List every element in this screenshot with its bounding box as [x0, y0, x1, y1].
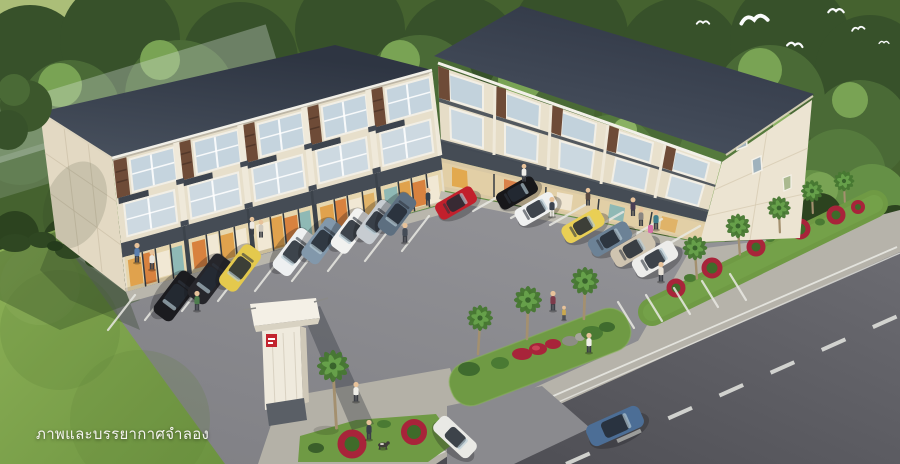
flower-ring — [341, 433, 363, 455]
gable-window — [752, 156, 762, 174]
flower-ring — [704, 260, 720, 276]
rendering-stage: ภาพและบรรยากาศจำลอง — [0, 0, 900, 464]
flower-ring — [749, 240, 763, 254]
pink-luggage — [648, 225, 653, 233]
watermark-disclaimer: ภาพและบรรยากาศจำลอง — [36, 422, 209, 446]
flower-ring — [829, 208, 843, 222]
gable-window — [783, 175, 791, 191]
flower-ring — [853, 202, 863, 212]
flower-ring — [404, 422, 424, 442]
architectural-rendering — [0, 0, 900, 464]
flower-bed — [512, 348, 532, 360]
louver-panel — [438, 66, 450, 101]
pylon-logo — [266, 334, 277, 347]
